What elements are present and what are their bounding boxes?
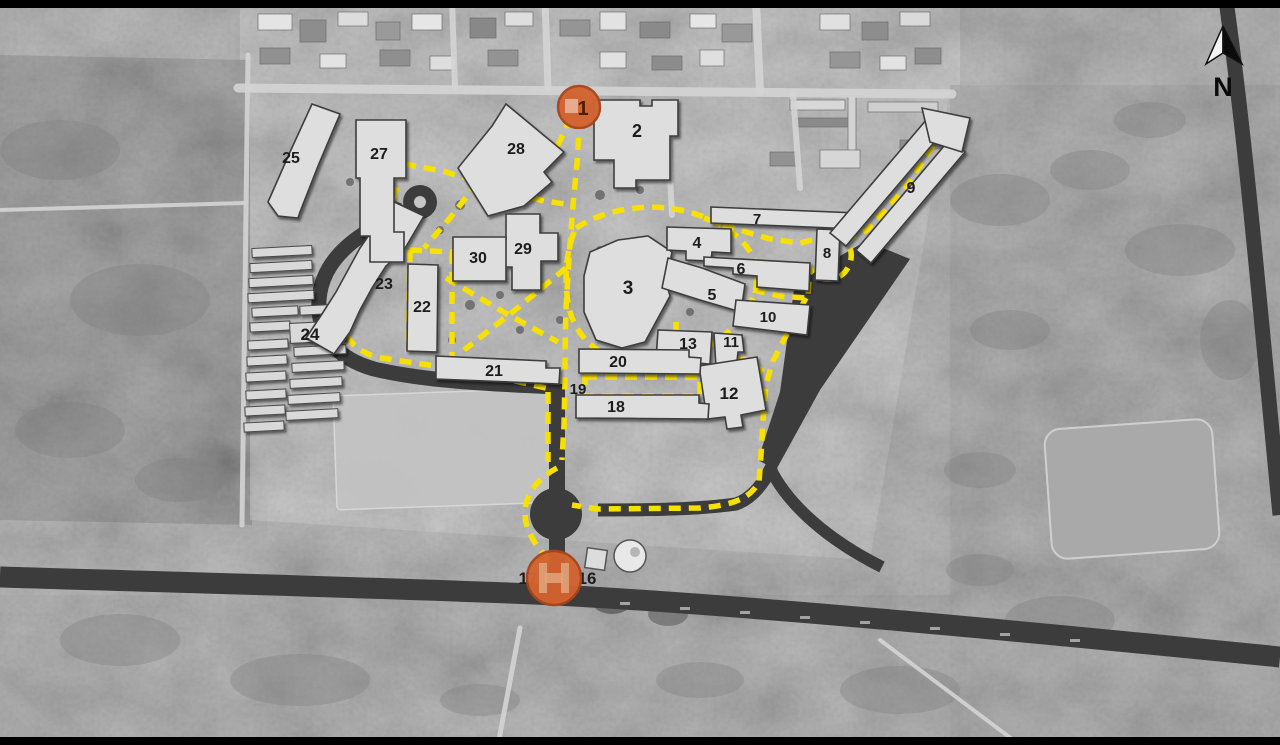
building-number-30: 30 <box>469 250 487 267</box>
building-number-27: 27 <box>370 146 388 163</box>
town-house <box>300 20 326 42</box>
town-house <box>600 12 626 30</box>
town-house <box>790 100 845 110</box>
building-number-13: 13 <box>679 336 697 353</box>
small-shed <box>585 548 608 571</box>
town-house <box>795 118 855 127</box>
scrub-patch <box>944 452 1016 488</box>
tree <box>556 316 564 324</box>
building-number-5: 5 <box>708 287 717 304</box>
barracks-block <box>245 405 285 416</box>
road-marking <box>800 616 810 619</box>
town-house <box>700 50 724 66</box>
scrub-patch <box>950 174 1050 226</box>
site-plan-map: 234567891011121318202122232527282930 191… <box>0 0 1280 745</box>
town-house <box>900 12 930 26</box>
letterbox-bottom <box>0 737 1280 745</box>
town-house <box>880 56 906 70</box>
road-marking <box>1000 633 1010 636</box>
north-label: N <box>1213 72 1233 102</box>
building-number-22: 22 <box>413 299 431 316</box>
scrub-patch <box>656 662 744 698</box>
loop-island <box>414 196 426 208</box>
building-number-20: 20 <box>609 354 627 371</box>
scrub-patch <box>1114 102 1186 138</box>
town-house <box>640 22 670 38</box>
map-label-24: 24 <box>301 325 320 344</box>
building-number-9: 9 <box>907 180 916 197</box>
town-house <box>505 12 533 26</box>
town-house <box>380 50 410 66</box>
barracks-block <box>246 371 286 382</box>
scrub-patch <box>946 554 1014 586</box>
tree <box>346 178 354 186</box>
barracks-block <box>247 355 287 366</box>
town-house <box>320 54 346 68</box>
town-house <box>722 24 752 42</box>
building-number-23: 23 <box>375 276 393 293</box>
marker-number-1: 1 <box>577 98 588 120</box>
building-number-12: 12 <box>720 384 739 403</box>
barracks-block <box>246 389 286 400</box>
tree <box>496 291 504 299</box>
town-house <box>258 14 292 30</box>
scrub-patch <box>60 614 180 666</box>
town-house <box>560 20 590 36</box>
town-house <box>376 22 400 40</box>
town-house <box>652 56 682 70</box>
town-house <box>470 18 496 38</box>
building-number-21: 21 <box>485 363 503 380</box>
scrub-patch <box>230 654 370 706</box>
building-number-2: 2 <box>632 121 642 141</box>
building-number-18: 18 <box>607 399 625 416</box>
road-marking <box>740 611 750 614</box>
road-marking <box>680 607 690 610</box>
scrub-patch <box>0 120 120 180</box>
tree <box>516 326 524 334</box>
building-18 <box>576 395 709 419</box>
water-tank-top <box>630 547 640 557</box>
barracks-block <box>250 321 290 332</box>
road-marking <box>1070 639 1080 642</box>
building-number-6: 6 <box>737 261 746 278</box>
building-number-3: 3 <box>623 278 634 299</box>
barracks-block <box>252 306 298 317</box>
town-house <box>690 14 716 28</box>
aerial-road <box>452 0 455 88</box>
building-number-25: 25 <box>282 150 300 167</box>
tree <box>686 308 694 316</box>
scrub-patch <box>1125 224 1235 276</box>
town-house <box>338 12 368 26</box>
building-number-29: 29 <box>514 241 532 258</box>
town-house <box>862 22 888 40</box>
road-marking <box>930 627 940 630</box>
town-house <box>770 152 798 166</box>
town-house <box>820 14 850 30</box>
letterbox-top <box>0 0 1280 8</box>
town-house <box>820 150 860 168</box>
town-house <box>412 14 442 30</box>
building-number-10: 10 <box>760 309 777 326</box>
town-house <box>915 48 941 64</box>
road-marking <box>620 602 630 605</box>
marker-building-tint <box>565 99 578 113</box>
map-svg: 234567891011121318202122232527282930 191… <box>0 0 1280 745</box>
town-house <box>260 48 290 64</box>
tree <box>636 186 644 194</box>
water-tank <box>614 540 646 572</box>
building-number-8: 8 <box>823 245 831 262</box>
building-number-11: 11 <box>723 334 739 351</box>
town-house <box>830 52 860 68</box>
scrub-patch <box>970 310 1050 350</box>
scrub-patch <box>70 264 210 336</box>
building-number-28: 28 <box>507 141 525 158</box>
road-marking <box>860 621 870 624</box>
town-house <box>488 50 518 66</box>
scrub-patch <box>1200 300 1260 380</box>
barracks-block <box>248 339 288 350</box>
tree <box>595 190 605 200</box>
scrub-patch <box>15 402 125 458</box>
gate-building-center <box>545 573 563 583</box>
building-number-4: 4 <box>693 235 702 252</box>
barracks-block <box>244 421 284 432</box>
aerial-road <box>756 0 760 92</box>
building-number-7: 7 <box>753 211 761 228</box>
scrub-patch <box>1050 150 1130 190</box>
scrub-patch <box>135 458 225 502</box>
map-label-19: 19 <box>570 381 587 398</box>
tree <box>465 300 475 310</box>
campus-sports-field <box>333 388 559 510</box>
scrub-patch <box>840 666 960 714</box>
east-sports-field <box>1044 418 1221 559</box>
town-house <box>600 52 626 68</box>
aerial-road <box>545 0 548 88</box>
